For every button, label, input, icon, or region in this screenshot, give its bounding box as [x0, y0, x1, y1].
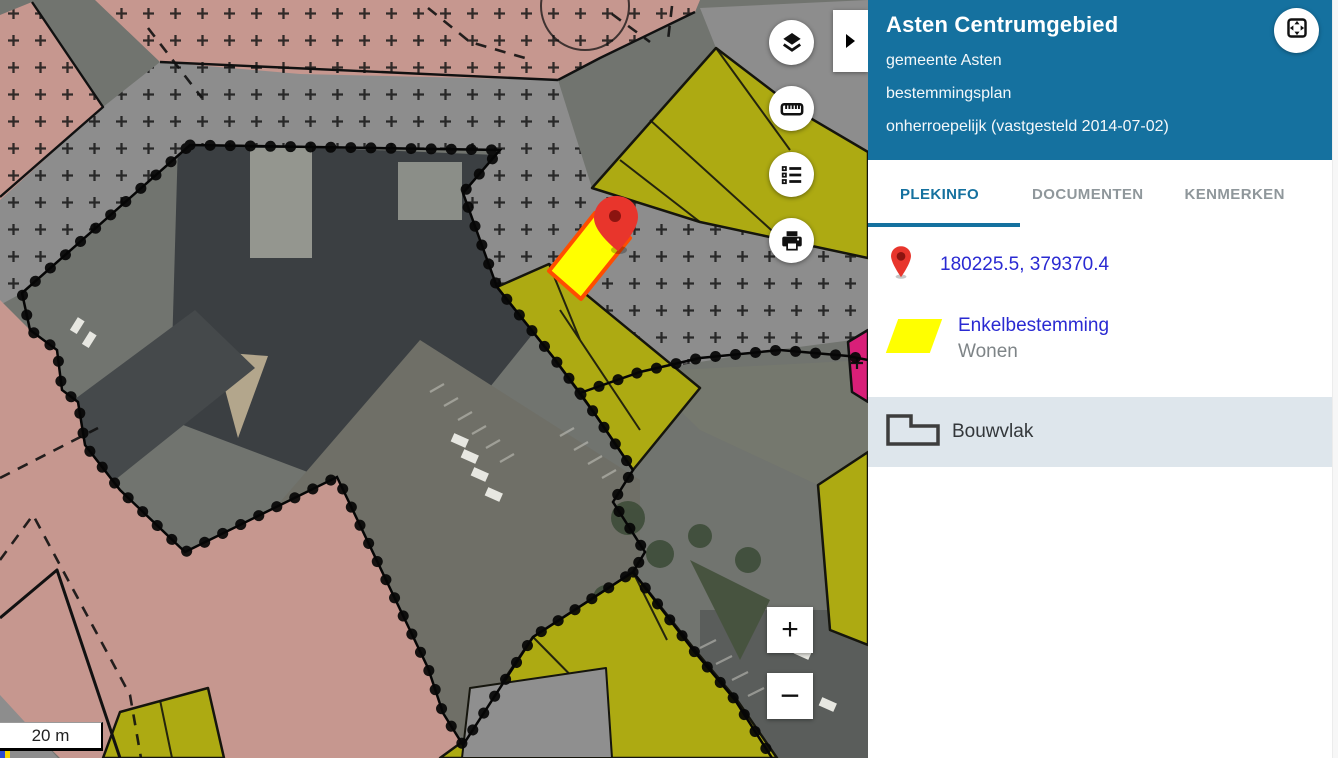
bouwvlak-icon	[868, 410, 942, 455]
zoom-in-button[interactable]: +	[767, 607, 813, 653]
bestemming-category-link[interactable]: Enkelbestemming	[958, 315, 1109, 337]
bouwvlak-row[interactable]: Bouwvlak	[868, 397, 1332, 467]
map-scalebar: 20 m	[0, 722, 103, 751]
zoom-out-button[interactable]: −	[767, 673, 813, 719]
bouwvlak-label: Bouwvlak	[952, 421, 1033, 443]
plan-type: bestemmingsplan	[886, 77, 1314, 110]
tabbar: PLEKINFO DOCUMENTEN KENMERKEN	[868, 160, 1332, 228]
map-rendering	[0, 0, 868, 758]
info-panel: Asten Centrumgebied gemeente Asten beste…	[868, 0, 1338, 758]
panel-collapse-button[interactable]	[833, 10, 868, 72]
measure-button[interactable]	[769, 86, 814, 131]
bestemming-swatch	[886, 319, 942, 353]
chevron-right-icon	[846, 34, 855, 48]
scalebar-label: 20 m	[32, 726, 70, 746]
active-tab-underline	[868, 223, 1020, 227]
attribution-mini	[0, 751, 10, 758]
bestemming-row: Enkelbestemming Wonen	[892, 315, 1332, 363]
map-canvas[interactable]: + − 20 m	[0, 0, 868, 758]
zoom-to-extent-icon	[1283, 14, 1311, 47]
tab-documenten[interactable]: DOCUMENTEN	[1032, 186, 1144, 203]
legend-button[interactable]	[769, 152, 814, 197]
layers-icon	[779, 30, 805, 56]
printer-icon	[779, 228, 805, 254]
plan-viewer: + − 20 m Asten Centrumgebied gemeente As…	[0, 0, 1338, 758]
plan-authority: gemeente Asten	[886, 44, 1314, 77]
clicked-coordinates: 180225.5, 379370.4	[940, 254, 1109, 276]
ruler-icon	[779, 96, 805, 122]
tab-kenmerken[interactable]: KENMERKEN	[1185, 186, 1285, 203]
tab-plekinfo[interactable]: PLEKINFO	[900, 186, 979, 203]
print-button[interactable]	[769, 218, 814, 263]
panel-scrollbar[interactable]	[1332, 0, 1338, 758]
zoom-to-plan-button[interactable]	[1274, 8, 1319, 53]
location-pin-icon	[888, 244, 914, 285]
coordinates-row: 180225.5, 379370.4	[888, 244, 1332, 285]
plan-header: Asten Centrumgebied gemeente Asten beste…	[868, 0, 1332, 160]
plan-title: Asten Centrumgebied	[886, 12, 1314, 38]
plan-status: onherroepelijk (vastgesteld 2014-07-02)	[886, 110, 1314, 143]
bestemming-value: Wonen	[958, 341, 1109, 363]
legend-list-icon	[779, 162, 805, 188]
layers-button[interactable]	[769, 20, 814, 65]
